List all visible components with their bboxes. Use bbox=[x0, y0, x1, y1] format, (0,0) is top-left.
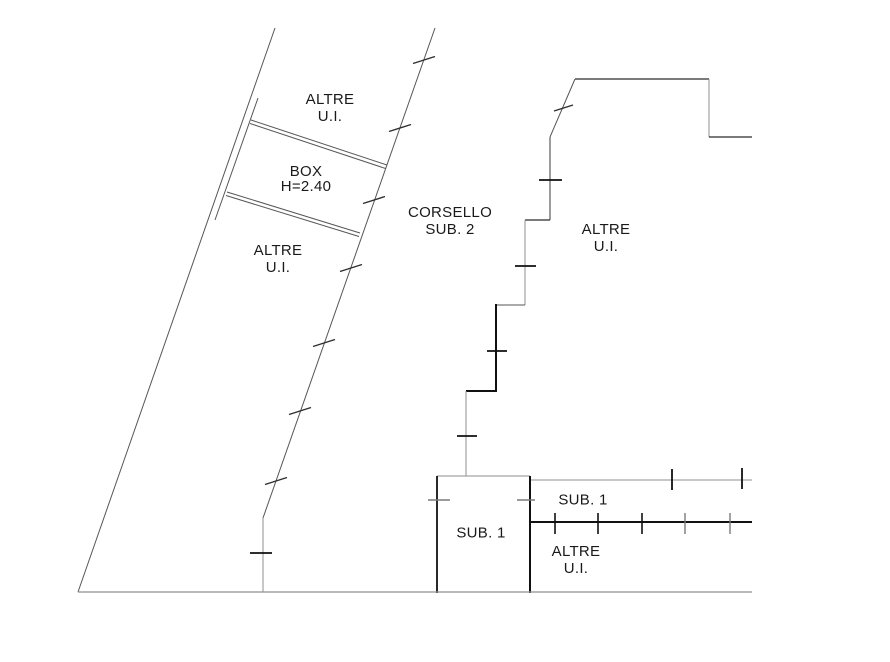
label-sub1-strip: SUB. 1 bbox=[558, 492, 607, 509]
label-line-2: U.I. bbox=[582, 238, 631, 255]
label-altre-ui-top: ALTRE U.I. bbox=[306, 91, 355, 125]
label-line-1: CORSELLO bbox=[408, 204, 492, 221]
boundary-tick bbox=[265, 478, 287, 485]
label-line-1: SUB. 1 bbox=[558, 492, 607, 509]
label-corsello-sub2: CORSELLO SUB. 2 bbox=[408, 204, 492, 238]
boundary-tick bbox=[389, 125, 411, 132]
label-line-2: U.I. bbox=[306, 108, 355, 125]
label-sub1-room: SUB. 1 bbox=[456, 525, 505, 542]
box-bottom-wall-outer bbox=[227, 192, 360, 233]
label-line-2: H=2.40 bbox=[281, 179, 332, 194]
cadastral-plan-drawing: ALTRE U.I. BOX H=2.40 ALTRE U.I. CORSELL… bbox=[0, 0, 890, 662]
label-altre-ui-left: ALTRE U.I. bbox=[254, 242, 303, 276]
ramp-left-edge bbox=[78, 28, 275, 592]
box-top-wall-inner bbox=[250, 124, 386, 169]
box-top-wall-outer bbox=[251, 120, 387, 165]
label-altre-ui-right: ALTRE U.I. bbox=[582, 221, 631, 255]
boundary-tick bbox=[340, 265, 362, 272]
label-line-1: ALTRE bbox=[306, 91, 355, 108]
boundary-tick bbox=[413, 57, 435, 64]
label-line-2: U.I. bbox=[552, 560, 601, 577]
label-altre-ui-bottom: ALTRE U.I. bbox=[552, 543, 601, 577]
label-line-1: SUB. 1 bbox=[456, 525, 505, 542]
plan-linework bbox=[0, 0, 890, 662]
label-line-1: BOX bbox=[281, 164, 332, 179]
label-box: BOX H=2.40 bbox=[281, 164, 332, 194]
label-line-1: ALTRE bbox=[254, 242, 303, 259]
label-line-1: ALTRE bbox=[552, 543, 601, 560]
label-line-2: U.I. bbox=[254, 259, 303, 276]
label-line-2: SUB. 2 bbox=[408, 221, 492, 238]
box-bottom-wall-inner bbox=[226, 196, 359, 237]
ramp-left-inner-wall bbox=[215, 98, 258, 220]
label-line-1: ALTRE bbox=[582, 221, 631, 238]
